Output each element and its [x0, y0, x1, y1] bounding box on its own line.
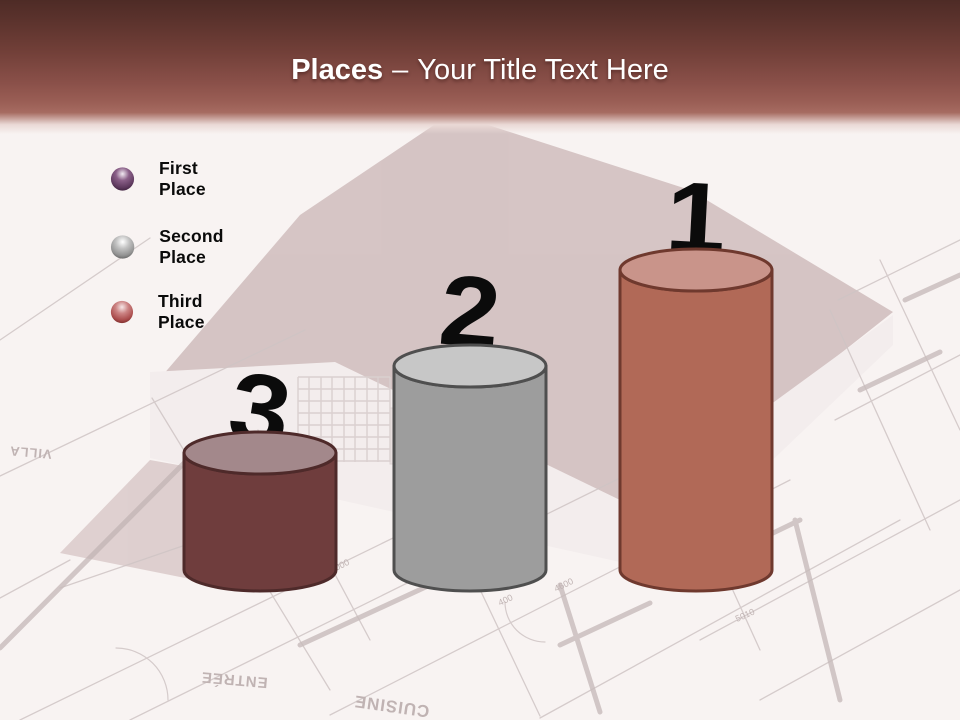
sphere	[111, 301, 133, 323]
blueprint-word: VILLA	[9, 443, 53, 462]
house-lower-roof	[60, 460, 330, 590]
rank-label-1: 1	[618, 164, 774, 272]
cylinder-body	[394, 366, 546, 591]
legend-item-third-place: Third Place	[110, 291, 219, 333]
legend-label-third-place: Third Place	[158, 291, 219, 333]
blueprint-dimension: 4600	[552, 576, 574, 594]
title-emphasis: Places	[291, 54, 383, 86]
legend-item-first-place: First Place	[110, 158, 219, 200]
cylinder-body	[184, 453, 336, 591]
rank-label-2: 2	[390, 256, 549, 369]
slide: VILLA ENTRÉE CUISINE 4000 4600 400 5010 …	[0, 0, 960, 720]
cylinder-body	[620, 270, 772, 591]
house-window	[720, 428, 772, 472]
house-window	[390, 408, 436, 464]
page-title: Places–Your Title Text Here	[0, 54, 960, 87]
blueprint-dimension: 400	[496, 592, 514, 608]
second-place-sphere-icon	[110, 228, 135, 266]
legend-label-second-place: Second Place	[159, 226, 236, 268]
cylinder-second-place	[394, 345, 546, 591]
legend-label-first-place: First Place	[159, 158, 219, 200]
header-band: Places–Your Title Text Here	[0, 0, 960, 134]
house-window	[470, 442, 516, 498]
blueprint-word: ENTRÉE	[200, 668, 268, 691]
first-place-sphere-icon	[110, 160, 135, 198]
blueprint-dimension: 4000	[328, 557, 350, 575]
house-right-wall	[640, 315, 893, 560]
legend-item-second-place: Second Place	[110, 226, 236, 268]
blueprint-dimension: 5010	[734, 607, 756, 624]
title-dash: –	[392, 54, 408, 86]
sphere	[111, 235, 134, 258]
blueprint-word: CUISINE	[353, 691, 431, 720]
blueprint-door-arc	[116, 602, 545, 700]
sphere	[111, 167, 134, 190]
rank-label-3: 3	[178, 349, 343, 471]
cylinder-first-place	[620, 249, 772, 591]
third-place-sphere-icon	[110, 293, 134, 331]
title-text: Your Title Text Here	[417, 54, 668, 86]
